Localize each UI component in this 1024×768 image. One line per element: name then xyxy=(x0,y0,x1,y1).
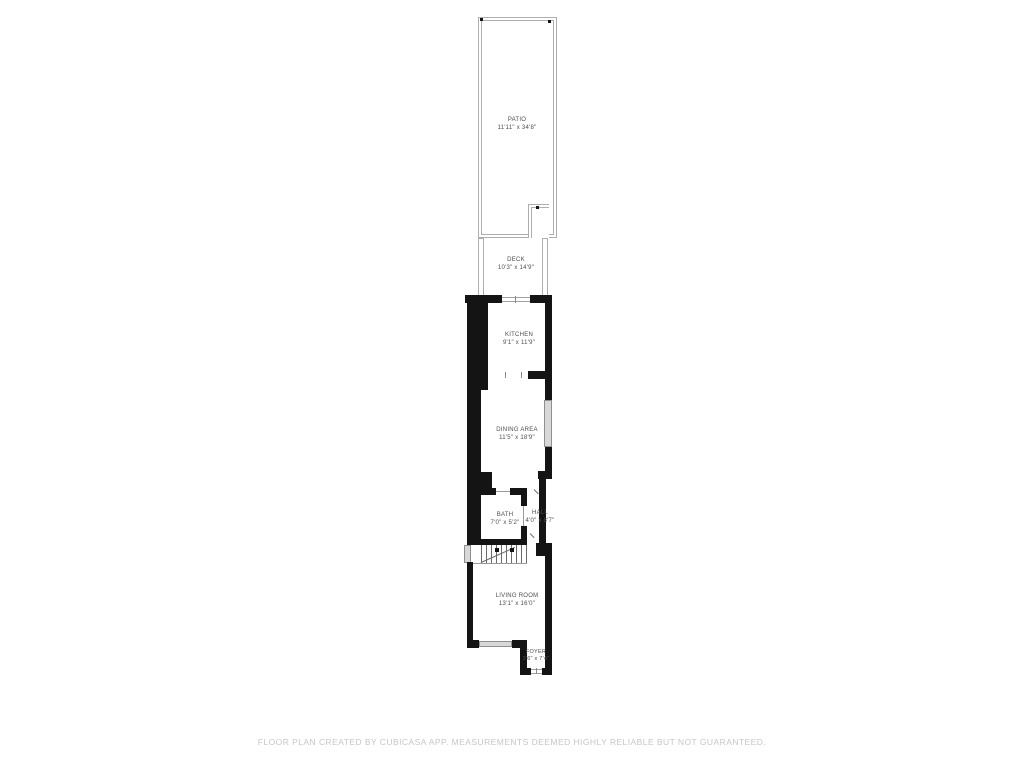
staircase xyxy=(481,545,527,563)
room-dims: 10'3" x 14'9" xyxy=(476,264,556,272)
room-name: HALL xyxy=(525,509,555,517)
wall-bath-right-upper xyxy=(521,488,527,506)
wall-foyer-bottom-left xyxy=(520,668,531,675)
patio-corner-tick-left xyxy=(480,18,483,21)
wall-living-bottom-left xyxy=(467,640,479,648)
wall-bath-top-left xyxy=(481,488,496,495)
room-name: PATIO xyxy=(477,116,557,124)
room-name: BATH xyxy=(480,511,530,519)
patio-notch-inner-line xyxy=(531,207,549,238)
room-label-foyer: FOYER 3'6" x 7'4" xyxy=(516,649,556,663)
room-label-kitchen: KITCHEN 9'1" x 11'9" xyxy=(479,331,559,347)
wall-left-living xyxy=(467,562,473,648)
room-dims: 7'0" x 5'2" xyxy=(480,519,530,527)
kitchen-deck-door-tick xyxy=(515,296,516,303)
hall-door-tick-1 xyxy=(534,489,539,494)
room-dims: 13'1" x 16'0" xyxy=(477,600,557,608)
staircase-post-2 xyxy=(510,548,514,552)
room-label-dining: DINING AREA 11'5" x 18'9" xyxy=(477,426,557,442)
patio-notch-tick xyxy=(536,206,539,209)
kitchen-dining-opening-tick-2 xyxy=(521,372,522,378)
hall-door-tick-2 xyxy=(530,533,535,538)
kitchen-dining-opening-tick-1 xyxy=(505,372,506,378)
window-left-stairwell xyxy=(464,545,471,563)
wall-foyer-bottom-right xyxy=(542,668,552,675)
window-living-bottom xyxy=(479,641,512,647)
room-dims: 9'1" x 11'9" xyxy=(479,339,559,347)
room-label-hall: HALL 4'0" x 8'7" xyxy=(525,509,555,525)
kitchen-deck-door xyxy=(502,297,530,302)
room-label-living: LIVING ROOM 13'1" x 16'0" xyxy=(477,592,557,608)
wall-right-kitchen xyxy=(545,295,552,400)
room-label-patio: PATIO 11'11" x 34'8" xyxy=(477,116,557,132)
patio-corner-tick-right xyxy=(548,20,551,23)
room-name: LIVING ROOM xyxy=(477,592,557,600)
room-label-deck: DECK 10'3" x 14'9" xyxy=(476,256,556,272)
room-dims: 11'5" x 18'9" xyxy=(477,434,557,442)
staircase-bottom-edge xyxy=(473,563,527,564)
room-dims: 11'11" x 34'8" xyxy=(477,124,557,132)
wall-right-step xyxy=(538,471,552,479)
wall-right-pilaster xyxy=(536,543,552,556)
staircase-post-1 xyxy=(495,548,499,552)
disclaimer-text: FLOOR PLAN CREATED BY CUBICASA APP. MEAS… xyxy=(0,737,1024,747)
bath-top-door-line xyxy=(496,491,510,492)
room-name: DINING AREA xyxy=(477,426,557,434)
floor-plan-page: PATIO 11'11" x 34'8" DECK 10'3" x 14'9" … xyxy=(0,0,1024,768)
wall-kitchen-dining xyxy=(528,371,552,379)
room-dims: 4'0" x 8'7" xyxy=(525,517,555,525)
room-dims: 3'6" x 7'4" xyxy=(516,656,556,663)
room-name: KITCHEN xyxy=(479,331,559,339)
room-label-bath: BATH 7'0" x 5'2" xyxy=(480,511,530,527)
room-name: DECK xyxy=(476,256,556,264)
foyer-entry-door-tick xyxy=(536,668,537,674)
room-name: FOYER xyxy=(516,649,556,656)
wall-left-dining xyxy=(467,390,481,545)
